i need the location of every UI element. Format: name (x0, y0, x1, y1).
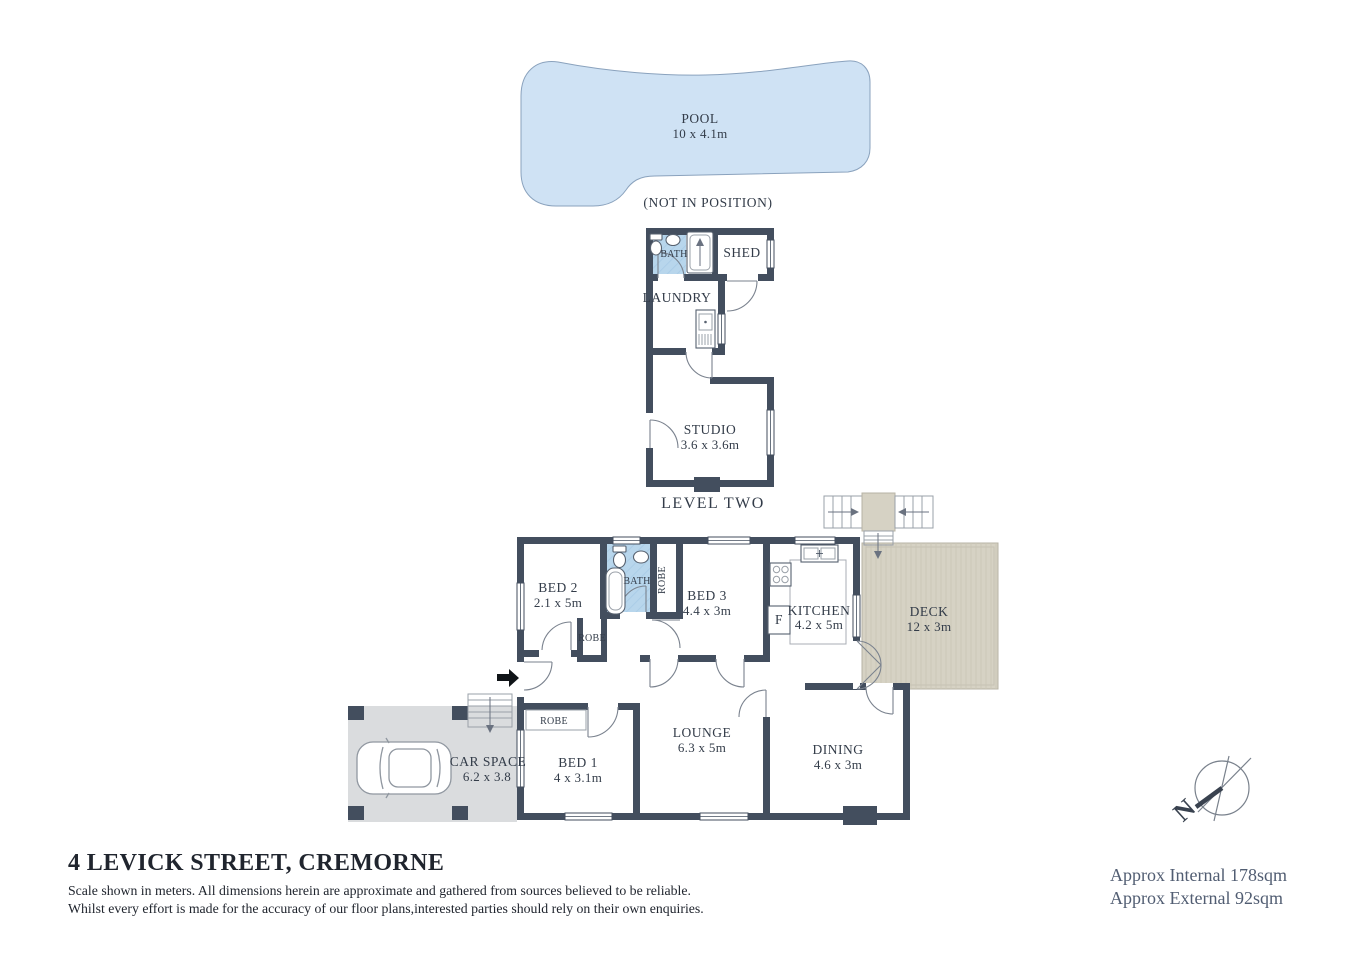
stair-landing (862, 493, 895, 531)
lounge-label: LOUNGE (673, 725, 732, 740)
pool-note: (NOT IN POSITION) (643, 195, 772, 210)
l2-studio-dims: 3.6 x 3.6m (681, 437, 740, 452)
deck-dims: 12 x 3m (907, 619, 952, 634)
toilet-tank-icon (650, 234, 662, 240)
dining-label: DINING (813, 742, 864, 757)
l2-bath-door-gap (658, 274, 684, 281)
dining-dims: 4.6 x 3m (814, 757, 862, 772)
title-block: 4 LEVICK STREET, CREMORNE Scale shown in… (68, 850, 828, 918)
robe-bed1-label: ROBE (540, 716, 568, 727)
l2-studio-door-gap (686, 348, 712, 355)
deck-label: DECK (910, 604, 949, 619)
bed1-dims: 4 x 3.1m (554, 770, 602, 785)
bath-label: BATH (623, 576, 650, 587)
bed3-dims: 4.4 x 3m (683, 603, 731, 618)
car-space-label: CAR SPACE (450, 754, 526, 769)
l2-bath-label: BATH (660, 249, 687, 260)
pool-label: POOL (681, 111, 718, 126)
pool-dims: 10 x 4.1m (672, 126, 727, 141)
disclaimer-line-1: Scale shown in meters. All dimensions he… (68, 883, 828, 900)
bed1-label: BED 1 (558, 755, 598, 770)
l2-laundry-label: LAUNDRY (643, 290, 712, 305)
bed2-label: BED 2 (538, 580, 578, 595)
level-two-label: LEVEL TWO (661, 495, 765, 512)
toilet-tank-icon (613, 546, 626, 552)
address-title: 4 LEVICK STREET, CREMORNE (68, 850, 828, 877)
entry-arrow-icon (497, 669, 519, 687)
approx-internal: Approx Internal 178sqm (1110, 864, 1287, 887)
pool-area: POOL 10 x 4.1m (NOT IN POSITION) (521, 61, 870, 210)
stove-icon (770, 563, 791, 586)
toilet-icon (614, 553, 626, 568)
floorplan-drawing: POOL 10 x 4.1m (NOT IN POSITION) (0, 0, 1358, 960)
compass-icon: N (1168, 756, 1251, 827)
kitchen-dims: 4.2 x 5m (795, 617, 843, 632)
level-two-plan: BATH SHED LAUNDRY STUDIO 3.6 x 3.6m LEVE… (643, 228, 774, 512)
bed3-label: BED 3 (687, 588, 727, 603)
approx-external: Approx External 92sqm (1110, 887, 1287, 910)
kitchen-label: KITCHEN (788, 603, 851, 618)
ground-level-plan: BED 2 2.1 x 5m BATH ROBE ROBE BED 3 4.4 … (348, 493, 998, 825)
lounge-dims: 6.3 x 5m (678, 740, 726, 755)
l2-landing-door-gap (727, 274, 758, 281)
basin-icon (634, 551, 649, 563)
floorplan-page: POOL 10 x 4.1m (NOT IN POSITION) (0, 0, 1358, 960)
compass-north-label: N (1168, 793, 1202, 827)
area-summary: Approx Internal 178sqm Approx External 9… (1110, 864, 1287, 911)
car-icon (357, 738, 451, 798)
bed2-dims: 2.1 x 5m (534, 595, 582, 610)
disclaimer-line-2: Whilst every effort is made for the accu… (68, 901, 828, 918)
robe-side-label: ROBE (657, 566, 668, 594)
robe-bed2-label: ROBE (578, 633, 606, 644)
car-space-dims: 6.2 x 3.8 (463, 769, 511, 784)
basin-icon (666, 235, 680, 246)
fridge-label: F (775, 612, 783, 627)
l2-shed-label: SHED (723, 245, 760, 260)
l2-studio-label: STUDIO (684, 422, 737, 437)
